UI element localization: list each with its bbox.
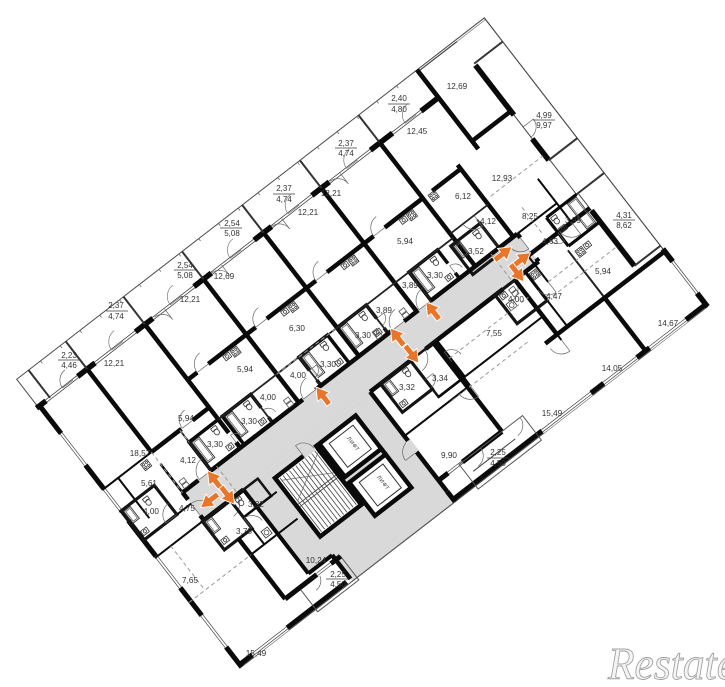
svg-text:4,47: 4,47 (546, 292, 562, 301)
svg-text:6,12: 6,12 (455, 192, 471, 201)
svg-text:4,31: 4,31 (616, 211, 632, 220)
svg-text:3,32: 3,32 (248, 500, 264, 509)
svg-text:2,37: 2,37 (108, 301, 124, 310)
svg-text:4,80: 4,80 (391, 105, 407, 114)
svg-text:12,93: 12,93 (492, 174, 513, 183)
svg-text:5,08: 5,08 (177, 271, 193, 280)
svg-text:2,37: 2,37 (276, 184, 292, 193)
svg-text:7,65: 7,65 (182, 576, 198, 585)
svg-text:12,69: 12,69 (214, 272, 235, 281)
svg-text:6,30: 6,30 (289, 324, 305, 333)
svg-text:4,46: 4,46 (61, 361, 77, 370)
svg-text:8,62: 8,62 (616, 221, 632, 230)
svg-text:4,00: 4,00 (290, 371, 306, 380)
svg-text:12,21: 12,21 (321, 189, 342, 198)
svg-text:2,40: 2,40 (391, 94, 407, 103)
svg-text:15,49: 15,49 (246, 649, 267, 658)
svg-text:8,25: 8,25 (522, 212, 538, 221)
svg-text:3,89: 3,89 (376, 306, 392, 315)
svg-text:4,99: 4,99 (536, 111, 552, 120)
svg-text:5,94: 5,94 (595, 267, 611, 276)
svg-text:2,23: 2,23 (61, 351, 77, 360)
svg-text:3,30: 3,30 (355, 331, 371, 340)
svg-text:3,30: 3,30 (427, 271, 443, 280)
svg-text:3,30: 3,30 (320, 360, 336, 369)
svg-text:9,90: 9,90 (441, 451, 457, 460)
svg-text:2,37: 2,37 (338, 139, 354, 148)
svg-text:3,99: 3,99 (565, 216, 581, 225)
svg-text:3,89: 3,89 (402, 281, 418, 290)
svg-text:2,25: 2,25 (490, 448, 506, 457)
svg-text:7,55: 7,55 (486, 329, 502, 338)
svg-text:4,00: 4,00 (260, 393, 276, 402)
svg-text:12,21: 12,21 (298, 208, 319, 217)
svg-text:12,21: 12,21 (104, 359, 125, 368)
svg-text:3,78: 3,78 (236, 527, 252, 536)
svg-text:5,94: 5,94 (237, 365, 253, 374)
svg-text:5,94: 5,94 (178, 414, 194, 423)
svg-text:2,54: 2,54 (224, 219, 240, 228)
svg-text:4,00: 4,00 (508, 295, 524, 304)
svg-text:4,12: 4,12 (180, 456, 196, 465)
svg-text:12,45: 12,45 (407, 127, 428, 136)
svg-text:4,74: 4,74 (276, 195, 292, 204)
svg-text:3,34: 3,34 (432, 374, 448, 383)
svg-text:12,69: 12,69 (447, 82, 468, 91)
svg-text:2,54: 2,54 (177, 261, 193, 270)
svg-text:Restate: Restate (607, 638, 725, 682)
svg-text:14,05: 14,05 (602, 364, 623, 373)
svg-text:4,74: 4,74 (108, 312, 124, 321)
svg-text:4,00: 4,00 (143, 507, 159, 516)
svg-text:9,97: 9,97 (536, 121, 552, 130)
svg-text:4,63: 4,63 (542, 237, 558, 246)
svg-text:4,50: 4,50 (490, 459, 506, 468)
svg-text:5,08: 5,08 (224, 229, 240, 238)
svg-text:10,24: 10,24 (306, 556, 327, 565)
svg-text:5,61: 5,61 (141, 479, 157, 488)
svg-text:4,74: 4,74 (338, 149, 354, 158)
svg-text:2,25: 2,25 (330, 570, 346, 579)
svg-text:3,32: 3,32 (399, 383, 415, 392)
svg-text:4,12: 4,12 (480, 217, 496, 226)
svg-text:4,75: 4,75 (179, 504, 195, 513)
svg-text:5,94: 5,94 (397, 237, 413, 246)
svg-text:3,30: 3,30 (207, 440, 223, 449)
svg-text:12,21: 12,21 (180, 295, 201, 304)
svg-text:3,52: 3,52 (468, 247, 484, 256)
svg-text:3,30: 3,30 (241, 417, 257, 426)
svg-text:15,49: 15,49 (542, 409, 563, 418)
svg-text:4,50: 4,50 (330, 580, 346, 589)
svg-text:14,67: 14,67 (658, 319, 679, 328)
svg-text:18,57: 18,57 (130, 449, 151, 458)
